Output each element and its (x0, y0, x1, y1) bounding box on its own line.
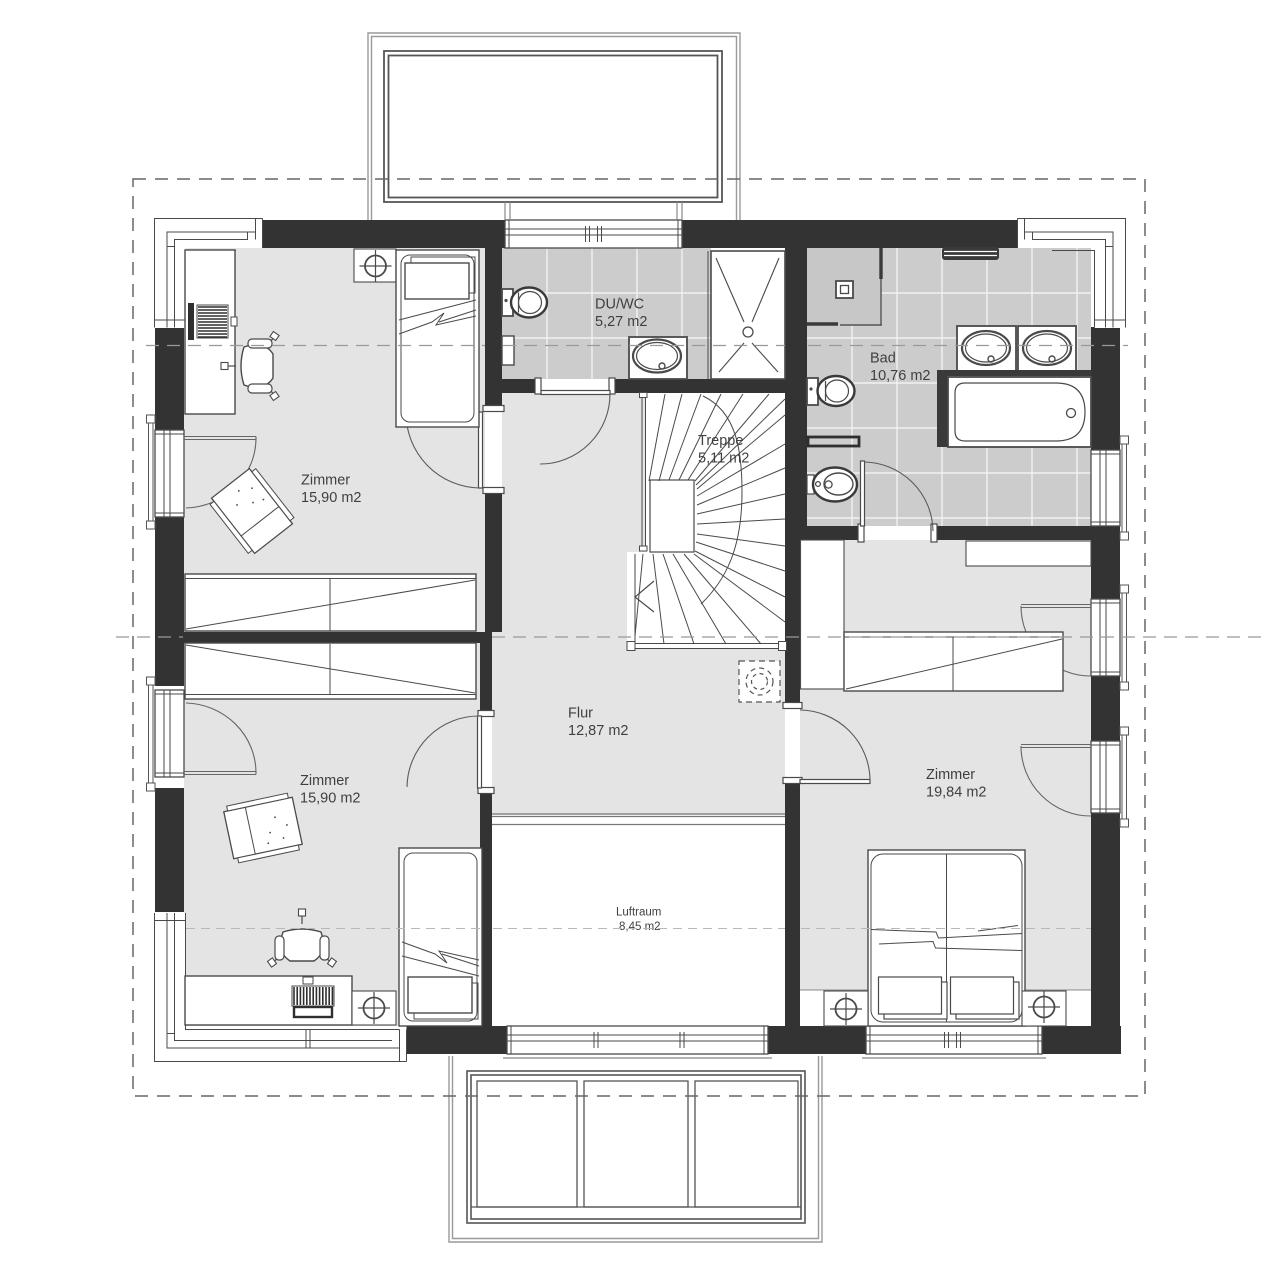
svg-text:Zimmer: Zimmer (300, 773, 349, 789)
svg-text:8,45 m2: 8,45 m2 (619, 921, 661, 933)
svg-text:5,11 m2: 5,11 m2 (698, 451, 749, 467)
svg-text:12,87 m2: 12,87 m2 (568, 723, 628, 739)
svg-text:10,76 m2: 10,76 m2 (870, 368, 930, 384)
svg-text:Luftraum: Luftraum (616, 907, 661, 919)
svg-text:Treppe: Treppe (698, 433, 743, 449)
svg-text:15,90 m2: 15,90 m2 (301, 490, 361, 506)
svg-text:Bad: Bad (870, 351, 896, 367)
svg-text:19,84 m2: 19,84 m2 (926, 785, 986, 801)
svg-text:5,27 m2: 5,27 m2 (595, 314, 647, 330)
svg-text:15,90 m2: 15,90 m2 (300, 791, 360, 807)
svg-text:Zimmer: Zimmer (926, 767, 975, 783)
svg-text:Flur: Flur (568, 706, 593, 722)
svg-text:DU/WC: DU/WC (595, 297, 644, 313)
svg-text:Zimmer: Zimmer (301, 473, 350, 489)
